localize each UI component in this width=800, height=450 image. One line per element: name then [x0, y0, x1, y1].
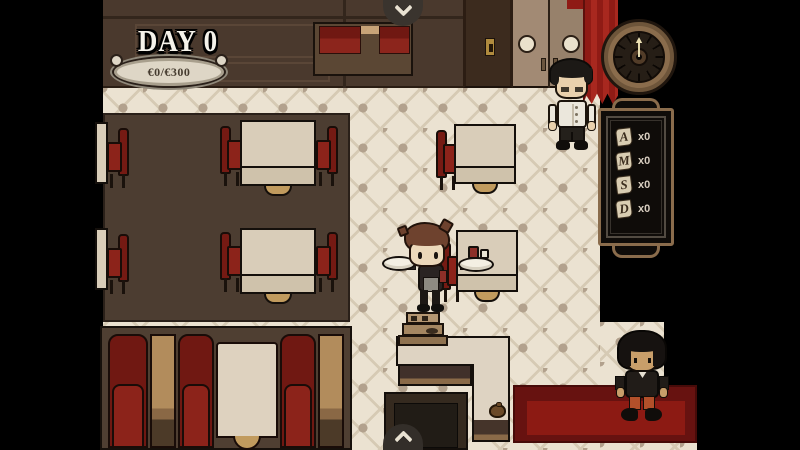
counter-column-base: [474, 420, 508, 440]
menu-item-letter: M: [617, 152, 630, 169]
menu-item-row: M x0: [609, 149, 663, 173]
recipe-icon: S: [615, 175, 633, 195]
red-cup: [468, 246, 479, 259]
counter-front-panel: [398, 366, 472, 386]
chair: [316, 232, 338, 292]
white-cup: [480, 249, 489, 259]
money-bag-knot: [496, 402, 502, 407]
keyhole-plate-icon: [485, 38, 495, 56]
hand: [587, 121, 596, 131]
booth-table[interactable]: [216, 342, 278, 438]
keyhole-icon: [489, 44, 493, 52]
recipe-icon: M: [615, 151, 633, 171]
menu-item-letter: D: [618, 200, 629, 217]
menu-board-cap-bottom: [612, 246, 660, 258]
cash-register[interactable]: [398, 312, 448, 350]
chevron-up-icon: [394, 430, 412, 448]
chair: [316, 126, 338, 186]
porthole-window-icon: [562, 35, 580, 53]
back-door[interactable]: [463, 0, 513, 88]
service-counter-column: [472, 364, 510, 442]
money-counter: €0/€300: [112, 56, 226, 88]
dining-table[interactable]: [454, 124, 516, 194]
game-stage: A x0 M x0 S x0 D x0: [0, 0, 800, 450]
table-skirt: [240, 276, 316, 294]
waiter-character[interactable]: [382, 220, 494, 312]
menu-item-row: A x0: [609, 125, 663, 149]
menu-item-row: S x0: [609, 173, 663, 197]
shoe: [621, 408, 638, 421]
recipe-icon: D: [615, 199, 633, 219]
hand: [548, 121, 557, 131]
chair: [220, 126, 242, 186]
booth-seat-cushion: [182, 384, 210, 448]
shoe: [556, 140, 570, 150]
booth-cushion: [379, 26, 410, 54]
hair-side: [623, 346, 631, 366]
waist-towel: [439, 270, 447, 283]
chair: [107, 234, 129, 294]
eye: [434, 252, 438, 259]
dining-table[interactable]: [240, 228, 316, 304]
booth-seat-cushion: [284, 384, 312, 448]
porthole-window-icon: [518, 35, 536, 53]
shoe: [417, 304, 430, 312]
menu-item-letter: A: [619, 129, 630, 146]
menu-item-letter: S: [619, 177, 628, 194]
hand: [659, 387, 668, 398]
tile-floor-below-carpet: [600, 443, 697, 450]
standing-customer[interactable]: [546, 58, 598, 154]
button: [575, 106, 578, 109]
hair-fringe: [407, 236, 447, 246]
booth-seat-cushion: [112, 384, 144, 448]
serving-tray: [458, 257, 494, 272]
shoe: [431, 304, 444, 312]
bar-booth-table: [313, 22, 413, 76]
hair-side: [551, 71, 559, 85]
money-bag[interactable]: [489, 404, 506, 418]
booth-divider: [318, 334, 344, 448]
booth-cushion: [319, 26, 361, 54]
chevron-down-icon: [394, 0, 412, 17]
booth-divider: [150, 334, 176, 448]
shirt: [557, 100, 587, 128]
glasses-icon: [561, 87, 569, 92]
table-pedestal: [264, 186, 292, 196]
menu-board: A x0 M x0 S x0 D x0: [598, 108, 674, 246]
table-edge-strip: [361, 26, 379, 34]
menu-item-count: x0: [638, 203, 650, 215]
button: [575, 113, 578, 116]
register-slot: [422, 316, 428, 321]
menu-board-rows: A x0 M x0 S x0 D x0: [609, 125, 663, 221]
hair-side: [653, 346, 661, 366]
shoe: [574, 140, 588, 150]
leg-split: [571, 132, 573, 142]
booth-seat: [280, 334, 316, 448]
booth-table-pedestal: [233, 436, 261, 450]
eye: [418, 252, 422, 259]
eye: [634, 358, 637, 363]
money-counter-text: €0/€300: [148, 65, 191, 80]
button-line: [572, 104, 574, 126]
table-skirt: [454, 168, 516, 184]
dining-table[interactable]: [240, 120, 316, 196]
seated-customer[interactable]: [613, 330, 671, 426]
table-top: [240, 120, 316, 168]
hair-side: [584, 70, 592, 83]
table-skirt: [240, 168, 316, 186]
eye: [648, 358, 651, 363]
table-top: [240, 228, 316, 276]
menu-item-count: x0: [638, 155, 650, 167]
table-pedestal: [472, 184, 498, 194]
chair: [220, 232, 242, 292]
register-base: [398, 335, 448, 346]
menu-item-row: D x0: [609, 197, 663, 221]
hand: [616, 387, 625, 398]
wall-clock: [601, 19, 677, 95]
table-pedestal: [264, 294, 292, 304]
register-display: [426, 328, 438, 334]
booth-block: [100, 326, 352, 450]
shoe: [645, 408, 662, 421]
table-top: [454, 124, 516, 168]
menu-item-count: x0: [638, 131, 650, 143]
menu-item-count: x0: [638, 179, 650, 191]
button: [575, 120, 578, 123]
booth-seat: [108, 334, 148, 448]
glasses-icon: [575, 87, 583, 92]
recipe-icon: A: [615, 127, 633, 147]
booth-seat: [178, 334, 214, 448]
register-slot: [411, 316, 417, 321]
chair: [107, 128, 129, 188]
